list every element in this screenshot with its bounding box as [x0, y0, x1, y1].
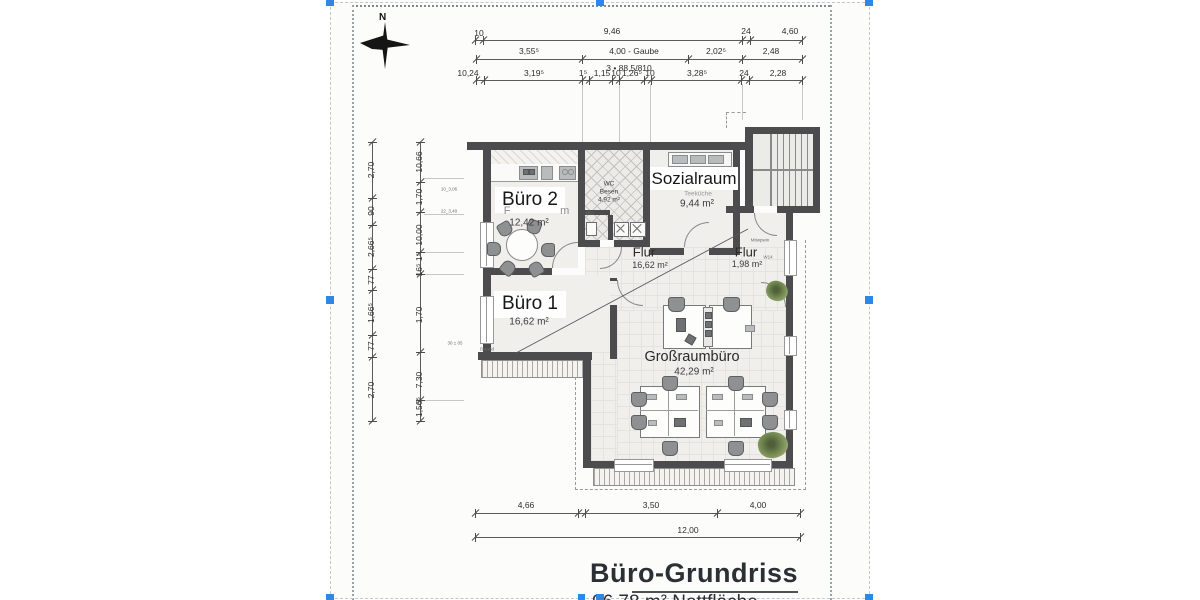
desk-item: [648, 420, 657, 426]
dim-label: 3,28⁵: [687, 68, 707, 78]
room-area-grossraum: 42,29 m²: [674, 367, 713, 378]
counter-section: [708, 155, 724, 164]
office-chair: [487, 242, 501, 256]
roof-edge-dashed: [575, 489, 806, 490]
window: [784, 410, 797, 430]
office-chair: [668, 297, 685, 312]
desk-cluster-divider: [706, 410, 764, 411]
room-ghost-sozialraum: Teeküche: [684, 191, 712, 198]
window-center-line: [789, 240, 790, 274]
dim-label: 24: [739, 68, 748, 78]
room-area-sozialraum: 9,44 m²: [680, 199, 714, 210]
dim-line-bottom-row-1: [475, 513, 800, 514]
window: [480, 296, 494, 344]
dim-label: 2,66⁵: [366, 237, 376, 257]
counter-section: [690, 155, 706, 164]
office-chair: [723, 297, 740, 312]
window-center-line: [724, 464, 770, 465]
room-area-buero1: 16,62 m²: [509, 317, 548, 328]
dim-label: 77: [366, 341, 376, 350]
selection-handle[interactable]: [596, 0, 604, 6]
stair-landing-line: [753, 169, 813, 171]
dim-label: 3,19⁵: [524, 68, 544, 78]
monitor-icon: [742, 394, 753, 400]
room-label-buero1: Büro 1: [502, 293, 558, 315]
office-chair: [541, 243, 555, 257]
window-center-line: [486, 296, 487, 342]
dim-guide-line: [619, 84, 620, 142]
wall-segment: [733, 150, 740, 255]
dim-label: 2,02⁵: [706, 46, 726, 56]
dim-label: 2,70: [366, 382, 376, 399]
cabinet-icon: [541, 166, 553, 180]
wc-sink: [586, 222, 597, 236]
room-label-flur1: Flur: [633, 245, 655, 260]
dim-label: 4,66: [518, 500, 535, 510]
dim-line-bottom-row-2: [475, 537, 800, 538]
room-area-flur1: 16,62 m²: [632, 260, 668, 270]
dim-line-top-row-3: [476, 80, 802, 81]
dim-label: 10: [645, 68, 654, 78]
dim-label: 24: [741, 26, 750, 36]
wall-segment: [583, 352, 591, 468]
window: [784, 336, 797, 356]
room-label-wc-3: 4,92 m²: [598, 197, 620, 204]
selection-handle[interactable]: [326, 296, 334, 304]
wall-segment: [578, 150, 585, 247]
dim-label: 1⁵: [579, 68, 587, 78]
dim-label: 3,50: [643, 500, 660, 510]
desk-cluster-divider: [640, 410, 698, 411]
drawing-title: Büro-Grundriss: [560, 558, 798, 589]
wall-segment: [745, 127, 753, 213]
room-area-flur2: 1,98 m²: [732, 259, 763, 269]
dim-line-top-row-2: [476, 59, 802, 60]
dim-label: 77: [366, 275, 376, 284]
tiny-annotation: 30 ± 05: [448, 341, 463, 346]
desk-cluster-divider: [668, 386, 669, 436]
window: [724, 459, 772, 472]
roof-edge-dashed: [726, 112, 746, 113]
dim-label: 16⁵: [414, 264, 424, 277]
wall-segment: [610, 305, 617, 359]
selection-handle[interactable]: [865, 296, 873, 304]
office-chair: [762, 415, 778, 430]
printer-icon: [705, 330, 712, 337]
room-label-wc-1: WC: [604, 181, 615, 188]
monitor-icon: [646, 394, 657, 400]
selection-handle[interactable]: [865, 0, 873, 6]
dim-label: 2,48: [763, 46, 780, 56]
selection-handle[interactable]: [596, 594, 604, 600]
dim-label: 1,70: [414, 189, 424, 206]
pc-icon: [674, 418, 686, 427]
office-chair: [631, 392, 647, 407]
dim-label: 2,28: [770, 68, 787, 78]
dim-guide-line: [424, 400, 464, 401]
editor-canvas: N 109,46244,603,55⁵4,00 - Gaube2,02⁵2,48…: [0, 0, 1200, 600]
counter-section: [672, 155, 688, 164]
office-chair: [762, 392, 778, 407]
office-chair: [728, 376, 744, 391]
wall-segment: [578, 240, 600, 247]
monitor-icon: [712, 394, 723, 400]
office-chair: [662, 441, 678, 456]
wall-segment: [610, 278, 617, 281]
tiny-annotation: Bstand: [480, 347, 494, 352]
dim-label: 7,30: [414, 372, 424, 389]
wall-segment: [608, 215, 613, 240]
tiny-annotation: 22_3,40: [441, 209, 457, 214]
desk-item: [745, 325, 755, 332]
room-label-grossraum: Großraumbüro: [644, 349, 739, 365]
dim-line-top-row-1: [475, 40, 802, 41]
room-label-sozialraum: Sozialraum: [651, 169, 736, 189]
roof-edge-dashed: [575, 377, 576, 490]
desk-item: [714, 420, 723, 426]
tiny-annotation: M01: [586, 211, 595, 216]
desk-cluster-divider: [734, 386, 735, 436]
office-chair: [728, 441, 744, 456]
dim-label: 12,00: [677, 525, 698, 535]
dim-guide-line: [742, 84, 743, 120]
dim-label: 1,70: [414, 307, 424, 324]
wall-segment: [467, 142, 753, 150]
selection-handle[interactable]: [326, 0, 334, 6]
pc-icon: [740, 418, 752, 427]
dim-label: 1,26⁵: [622, 68, 642, 78]
drawing-subtitle: 96,78 m² Nettfläche: [592, 592, 758, 600]
room-label-buero2: Büro 2: [502, 189, 558, 211]
tiny-annotation: 10_3,06: [441, 187, 457, 192]
dim-label: 1⁵: [414, 253, 424, 261]
monitor-icon: [676, 318, 686, 332]
dim-label: 4,60: [782, 26, 799, 36]
printer-icon: [705, 312, 712, 319]
room-label-flur2: Flur: [735, 245, 757, 260]
sink-basin: [568, 169, 574, 175]
office-chair: [631, 415, 647, 430]
selection-handle[interactable]: [326, 594, 334, 600]
room-area-buero2: 12,42 m²: [509, 218, 548, 229]
dim-label: 3,55⁵: [519, 46, 539, 56]
window: [614, 459, 654, 472]
window: [784, 240, 797, 276]
dim-label: 4,00 - Gaube: [609, 46, 659, 56]
wall-segment: [777, 206, 820, 213]
window-center-line: [789, 410, 790, 428]
list-bullet-icon: [578, 594, 585, 600]
window-center-line: [789, 336, 790, 354]
room-label-wc-2: Besen: [600, 189, 618, 196]
dim-label: 10: [474, 28, 483, 38]
monitor-icon: [676, 394, 687, 400]
dim-label: 10: [611, 68, 620, 78]
dim-label: 9,46: [604, 26, 621, 36]
north-label: N: [379, 12, 386, 23]
dim-label: 10,00: [414, 224, 424, 245]
dim-guide-line: [424, 214, 464, 215]
dim-guide-line: [802, 84, 803, 120]
dim-label: 90: [366, 206, 376, 215]
dim-label: 10,66: [414, 151, 424, 172]
dim-guide-line: [424, 178, 464, 179]
selection-handle[interactable]: [865, 594, 873, 600]
dim-label: 1,66⁵: [366, 303, 376, 323]
dim-label: 10,24: [457, 68, 478, 78]
dim-guide-line: [650, 84, 651, 142]
dim-label: 1,56⁵: [414, 397, 424, 417]
dim-label: 1,15: [594, 68, 611, 78]
wall-segment: [745, 127, 820, 134]
dim-label: 4,00: [750, 500, 767, 510]
dim-guide-line: [424, 274, 464, 275]
dim-guide-line: [582, 84, 583, 142]
stair-mid-rail: [770, 134, 771, 206]
tiny-annotation: W14: [763, 255, 772, 260]
roof-edge-dashed: [726, 112, 727, 128]
wall-segment: [813, 127, 820, 213]
printer-icon: [705, 321, 712, 328]
wall-segment: [726, 206, 754, 213]
north-arrow-icon: N: [358, 8, 418, 72]
office-chair: [662, 376, 678, 391]
wall-segment: [478, 352, 592, 360]
stove-knob: [529, 169, 535, 175]
tiny-annotation: Mitwpwin: [751, 238, 770, 243]
window-center-line: [614, 464, 652, 465]
dim-guide-line: [424, 252, 464, 253]
dim-label: 2,70: [366, 162, 376, 179]
roof-edge-dashed: [805, 240, 806, 490]
